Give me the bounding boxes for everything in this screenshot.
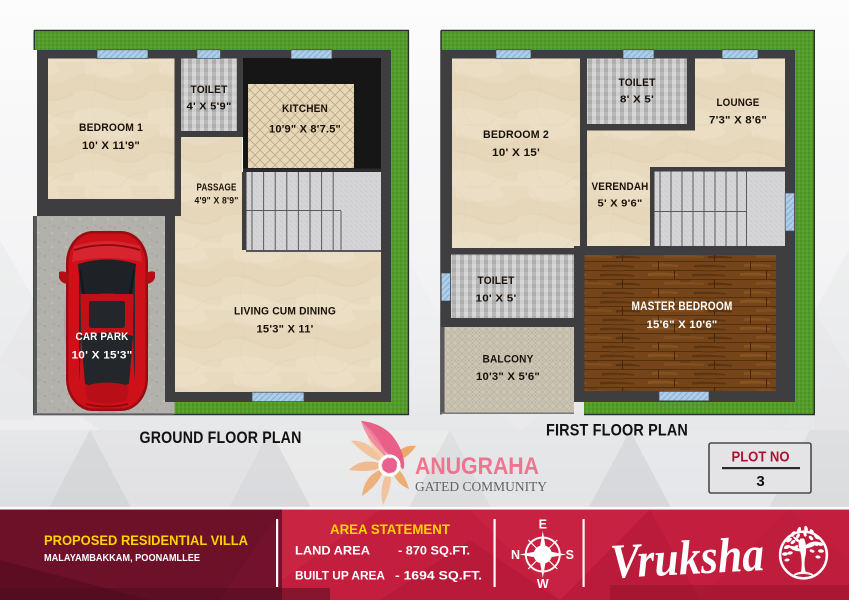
svg-text:MASTER BEDROOM: MASTER BEDROOM bbox=[632, 301, 733, 313]
svg-text:ANUGRAHA: ANUGRAHA bbox=[415, 453, 539, 480]
svg-text:VERENDAH: VERENDAH bbox=[592, 181, 649, 193]
svg-text:TOILET: TOILET bbox=[191, 84, 228, 96]
svg-text:15'3" X 11': 15'3" X 11' bbox=[257, 324, 314, 336]
svg-text:LAND AREA: LAND AREA bbox=[295, 544, 370, 558]
svg-text:MALAYAMBAKKAM, POONAMLLEE: MALAYAMBAKKAM, POONAMLLEE bbox=[44, 552, 200, 564]
svg-text:BALCONY: BALCONY bbox=[483, 354, 534, 366]
svg-text:10' X 5': 10' X 5' bbox=[476, 293, 517, 305]
svg-text:10' X 11'9": 10' X 11'9" bbox=[82, 140, 140, 152]
svg-text:10' X 15': 10' X 15' bbox=[492, 147, 540, 159]
svg-text:8' X 5': 8' X 5' bbox=[620, 94, 654, 106]
svg-text:TOILET: TOILET bbox=[478, 275, 515, 287]
svg-text:BEDROOM 2: BEDROOM 2 bbox=[483, 129, 549, 141]
svg-text:BEDROOM 1: BEDROOM 1 bbox=[79, 122, 143, 134]
svg-text:PLOT NO: PLOT NO bbox=[732, 450, 790, 466]
svg-text:N: N bbox=[511, 548, 520, 562]
svg-text:10'9" X 8'7.5": 10'9" X 8'7.5" bbox=[269, 124, 341, 136]
svg-text:- 1694 SQ.FT.: - 1694 SQ.FT. bbox=[395, 569, 482, 583]
svg-text:S: S bbox=[566, 548, 574, 562]
svg-text:10' X 15'3": 10' X 15'3" bbox=[72, 350, 133, 362]
svg-text:LOUNGE: LOUNGE bbox=[717, 97, 760, 109]
svg-text:TOILET: TOILET bbox=[619, 77, 656, 89]
svg-text:KITCHEN: KITCHEN bbox=[282, 103, 328, 115]
svg-text:E: E bbox=[539, 518, 547, 532]
svg-text:W: W bbox=[537, 577, 549, 591]
svg-text:GROUND FLOOR PLAN: GROUND FLOOR PLAN bbox=[140, 428, 302, 447]
svg-text:4' X 5'9": 4' X 5'9" bbox=[187, 101, 232, 113]
svg-text:BUILT UP AREA: BUILT UP AREA bbox=[295, 569, 385, 583]
svg-text:FIRST FLOOR PLAN: FIRST FLOOR PLAN bbox=[546, 421, 688, 440]
svg-text:CAR PARK: CAR PARK bbox=[76, 331, 129, 343]
svg-text:15'6" X 10'6": 15'6" X 10'6" bbox=[647, 319, 718, 331]
svg-text:7'3" X 8'6": 7'3" X 8'6" bbox=[709, 115, 767, 127]
svg-text:PROPOSED RESIDENTIAL VILLA: PROPOSED RESIDENTIAL VILLA bbox=[44, 533, 248, 548]
svg-text:3: 3 bbox=[756, 473, 764, 490]
svg-text:GATED COMMUNITY: GATED COMMUNITY bbox=[415, 479, 547, 494]
svg-text:10'3" X 5'6": 10'3" X 5'6" bbox=[476, 371, 540, 383]
svg-text:AREA STATEMENT: AREA STATEMENT bbox=[330, 522, 451, 537]
svg-text:- 870 SQ.FT.: - 870 SQ.FT. bbox=[398, 544, 470, 558]
svg-text:Vruksha: Vruksha bbox=[609, 526, 766, 589]
svg-text:LIVING CUM DINING: LIVING CUM DINING bbox=[234, 306, 336, 318]
svg-text:PASSAGE: PASSAGE bbox=[197, 183, 237, 194]
svg-text:4'9" X 8'9": 4'9" X 8'9" bbox=[195, 196, 239, 206]
svg-text:5' X 9'6": 5' X 9'6" bbox=[598, 198, 643, 210]
